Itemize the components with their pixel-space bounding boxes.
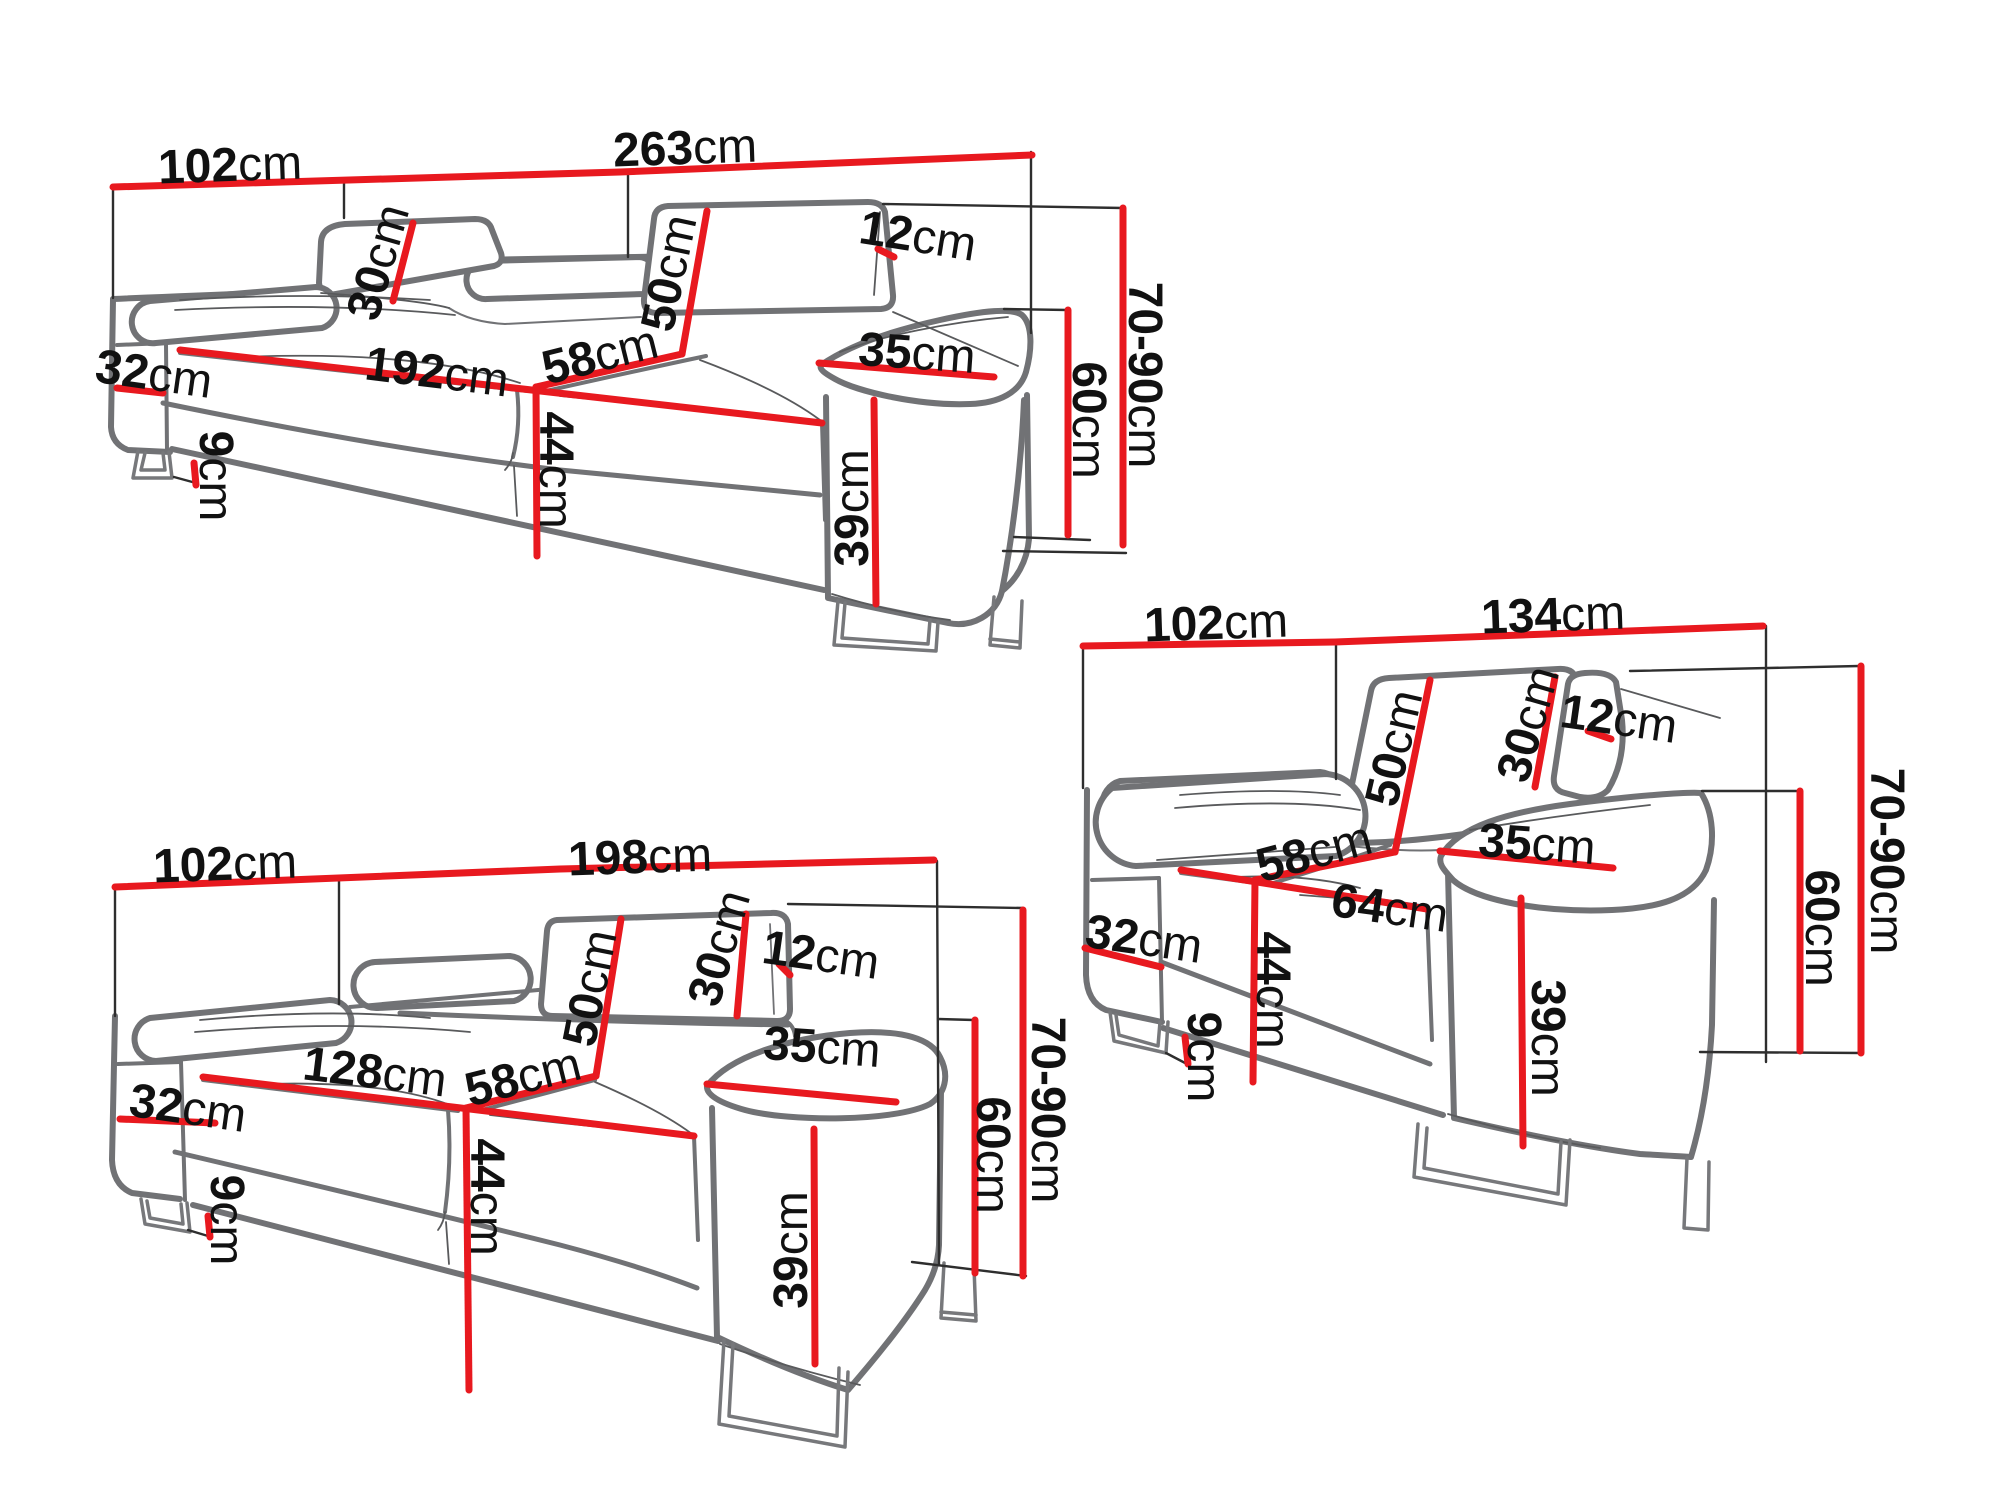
svg-text:39cm: 39cm bbox=[765, 1191, 818, 1308]
svg-text:60cm: 60cm bbox=[1062, 361, 1115, 478]
svg-text:102cm: 102cm bbox=[1143, 595, 1289, 653]
svg-text:9cm: 9cm bbox=[1177, 1012, 1230, 1103]
svg-text:44cm: 44cm bbox=[460, 1138, 513, 1255]
svg-text:70-90cm: 70-90cm bbox=[1021, 1017, 1074, 1204]
svg-text:9cm: 9cm bbox=[200, 1175, 253, 1266]
svg-text:39cm: 39cm bbox=[1521, 979, 1574, 1096]
svg-text:70-90cm: 70-90cm bbox=[1118, 282, 1171, 469]
svg-text:263cm: 263cm bbox=[612, 120, 758, 178]
svg-text:102cm: 102cm bbox=[152, 836, 298, 894]
svg-text:60cm: 60cm bbox=[1795, 869, 1848, 986]
svg-text:9cm: 9cm bbox=[189, 431, 242, 522]
svg-text:198cm: 198cm bbox=[567, 829, 713, 887]
svg-text:60cm: 60cm bbox=[966, 1096, 1019, 1213]
svg-text:35cm: 35cm bbox=[1477, 814, 1598, 875]
svg-text:70-90cm: 70-90cm bbox=[1860, 768, 1913, 955]
svg-text:44cm: 44cm bbox=[1246, 931, 1299, 1048]
svg-text:102cm: 102cm bbox=[157, 137, 303, 195]
svg-text:44cm: 44cm bbox=[529, 411, 582, 528]
svg-text:134cm: 134cm bbox=[1480, 587, 1626, 645]
svg-text:39cm: 39cm bbox=[826, 449, 879, 566]
svg-text:35cm: 35cm bbox=[857, 323, 978, 384]
svg-text:35cm: 35cm bbox=[762, 1017, 883, 1078]
